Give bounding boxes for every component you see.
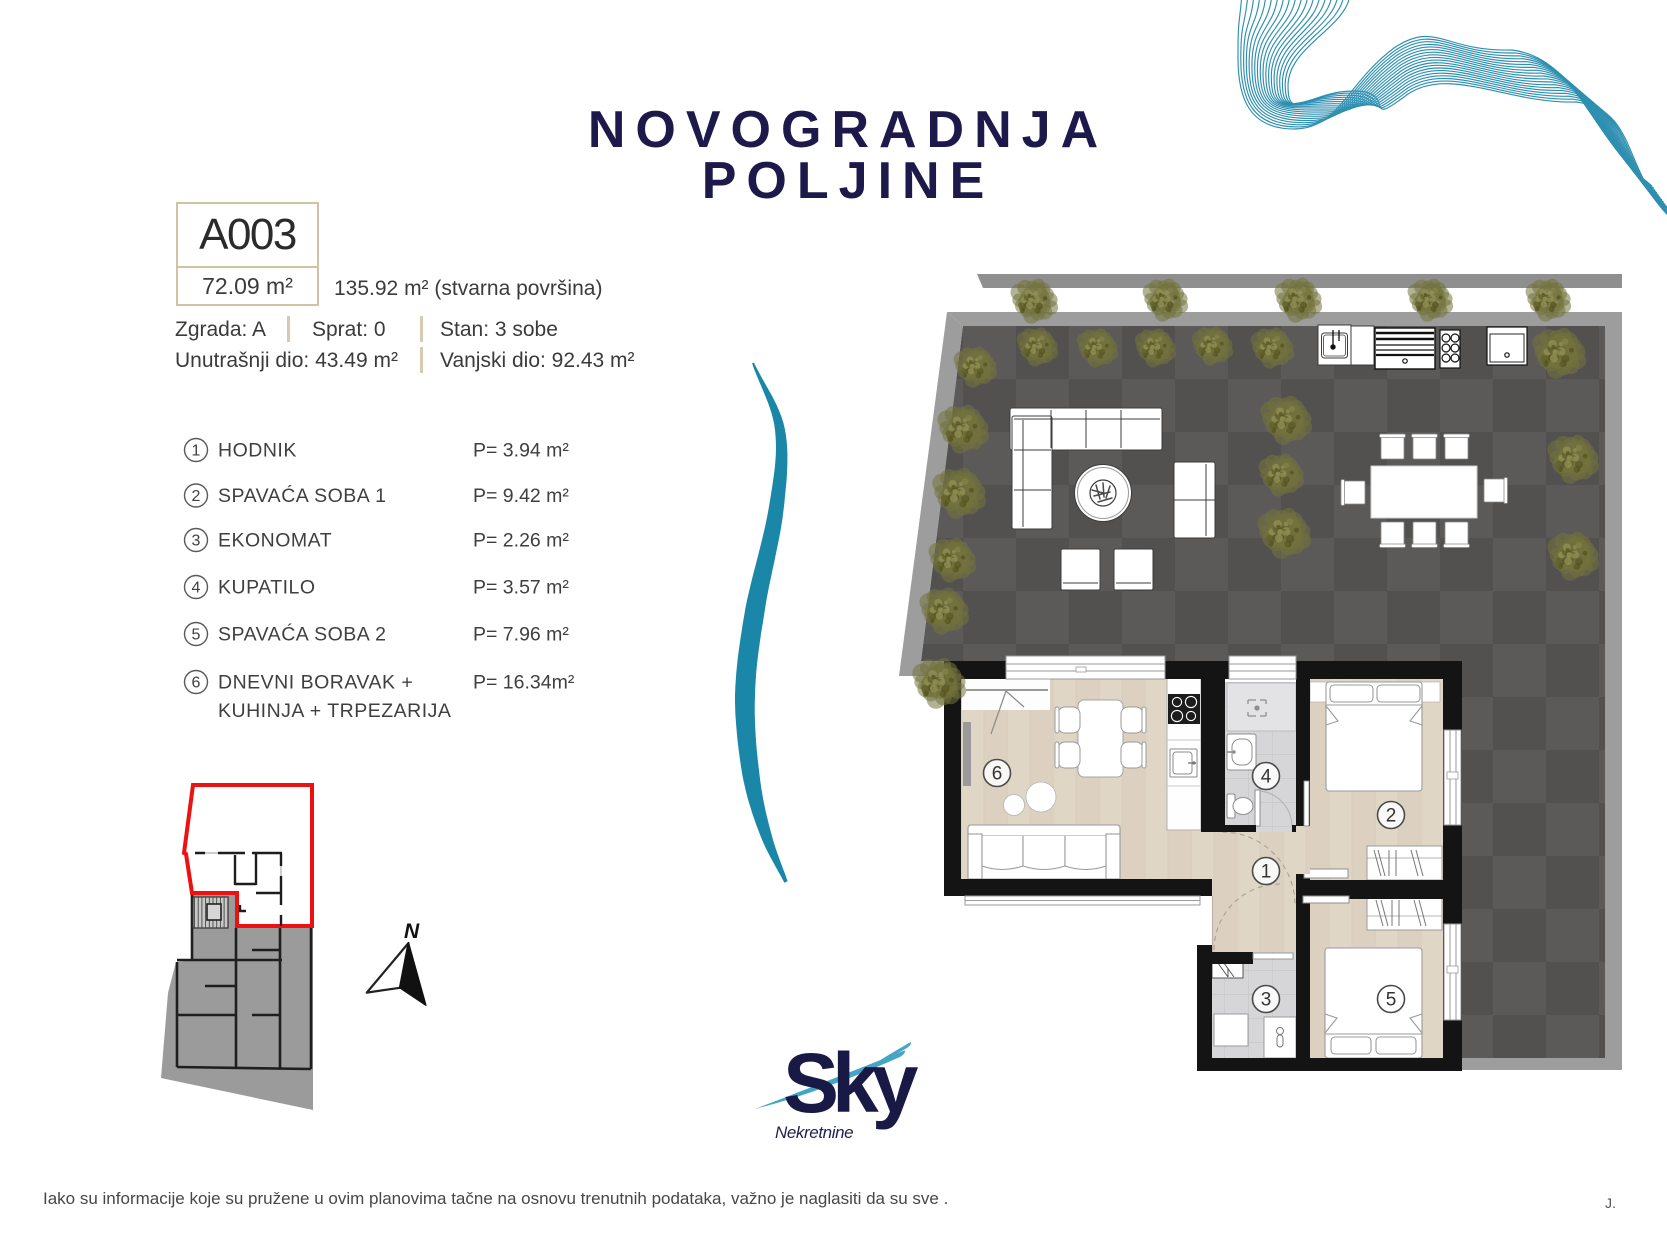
svg-text:5: 5 [192,627,201,644]
svg-text:DNEVNI BORAVAK +: DNEVNI BORAVAK + [218,672,413,694]
svg-text:6: 6 [992,764,1003,785]
svg-text:Nekretnine: Nekretnine [775,1123,853,1142]
svg-text:5: 5 [1386,990,1397,1011]
svg-text:1: 1 [192,443,201,460]
svg-text:1: 1 [1261,862,1272,883]
svg-text:SPAVAĆA SOBA 1: SPAVAĆA SOBA 1 [218,484,387,507]
svg-text:2: 2 [1386,806,1397,827]
svg-text:P= 7.96 m²: P= 7.96 m² [473,624,569,646]
svg-text:KUHINJA + TRPEZARIJA: KUHINJA + TRPEZARIJA [218,700,451,722]
svg-text:N: N [404,920,420,943]
svg-text:3: 3 [192,533,201,550]
svg-text:2: 2 [192,488,201,505]
svg-text:EKONOMAT: EKONOMAT [218,530,332,552]
svg-text:6: 6 [192,675,201,692]
svg-text:P= 3.94 m²: P= 3.94 m² [473,440,569,462]
svg-text:KUPATILO: KUPATILO [218,577,316,599]
svg-text:SPAVAĆA SOBA 2: SPAVAĆA SOBA 2 [218,623,387,646]
svg-text:HODNIK: HODNIK [218,440,297,462]
svg-text:P= 2.26 m²: P= 2.26 m² [473,530,569,552]
svg-text:P= 3.57 m²: P= 3.57 m² [473,577,569,599]
svg-text:4: 4 [1261,767,1272,788]
svg-text:P= 16.34m²: P= 16.34m² [473,672,575,694]
svg-text:4: 4 [192,580,201,597]
svg-text:P= 9.42 m²: P= 9.42 m² [473,485,569,507]
svg-text:3: 3 [1261,990,1272,1011]
